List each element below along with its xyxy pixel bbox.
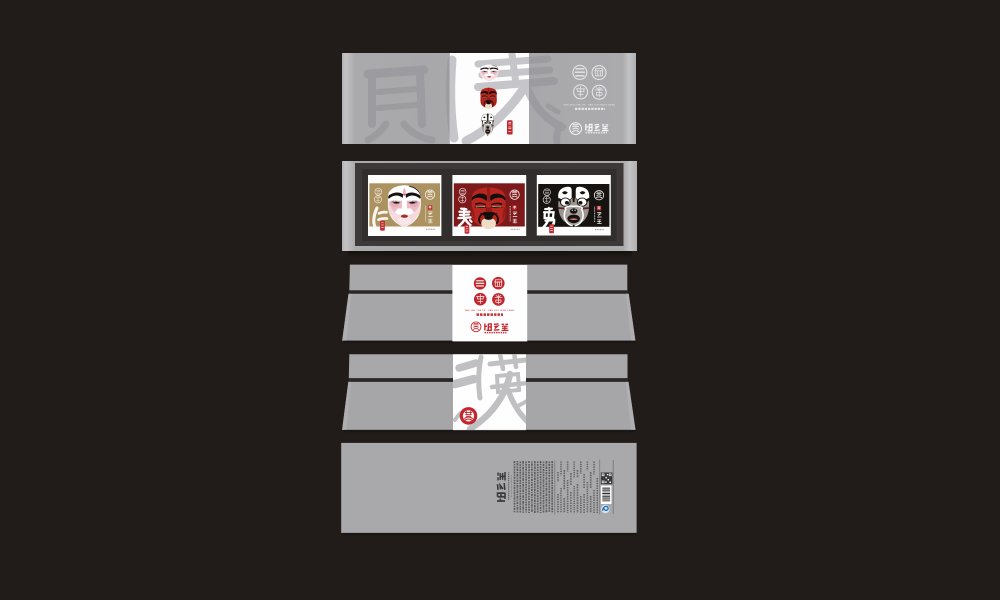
- svg-text:SAN SHU CHA JIE · SAN GUO MING: SAN SHU CHA JIE · SAN GUO MING JIANG: [564, 104, 616, 107]
- svg-text:SAN SHU CHA JIE · SAN GUO MING: SAN SHU CHA JIE · SAN GUO MING JIANG: [465, 309, 515, 312]
